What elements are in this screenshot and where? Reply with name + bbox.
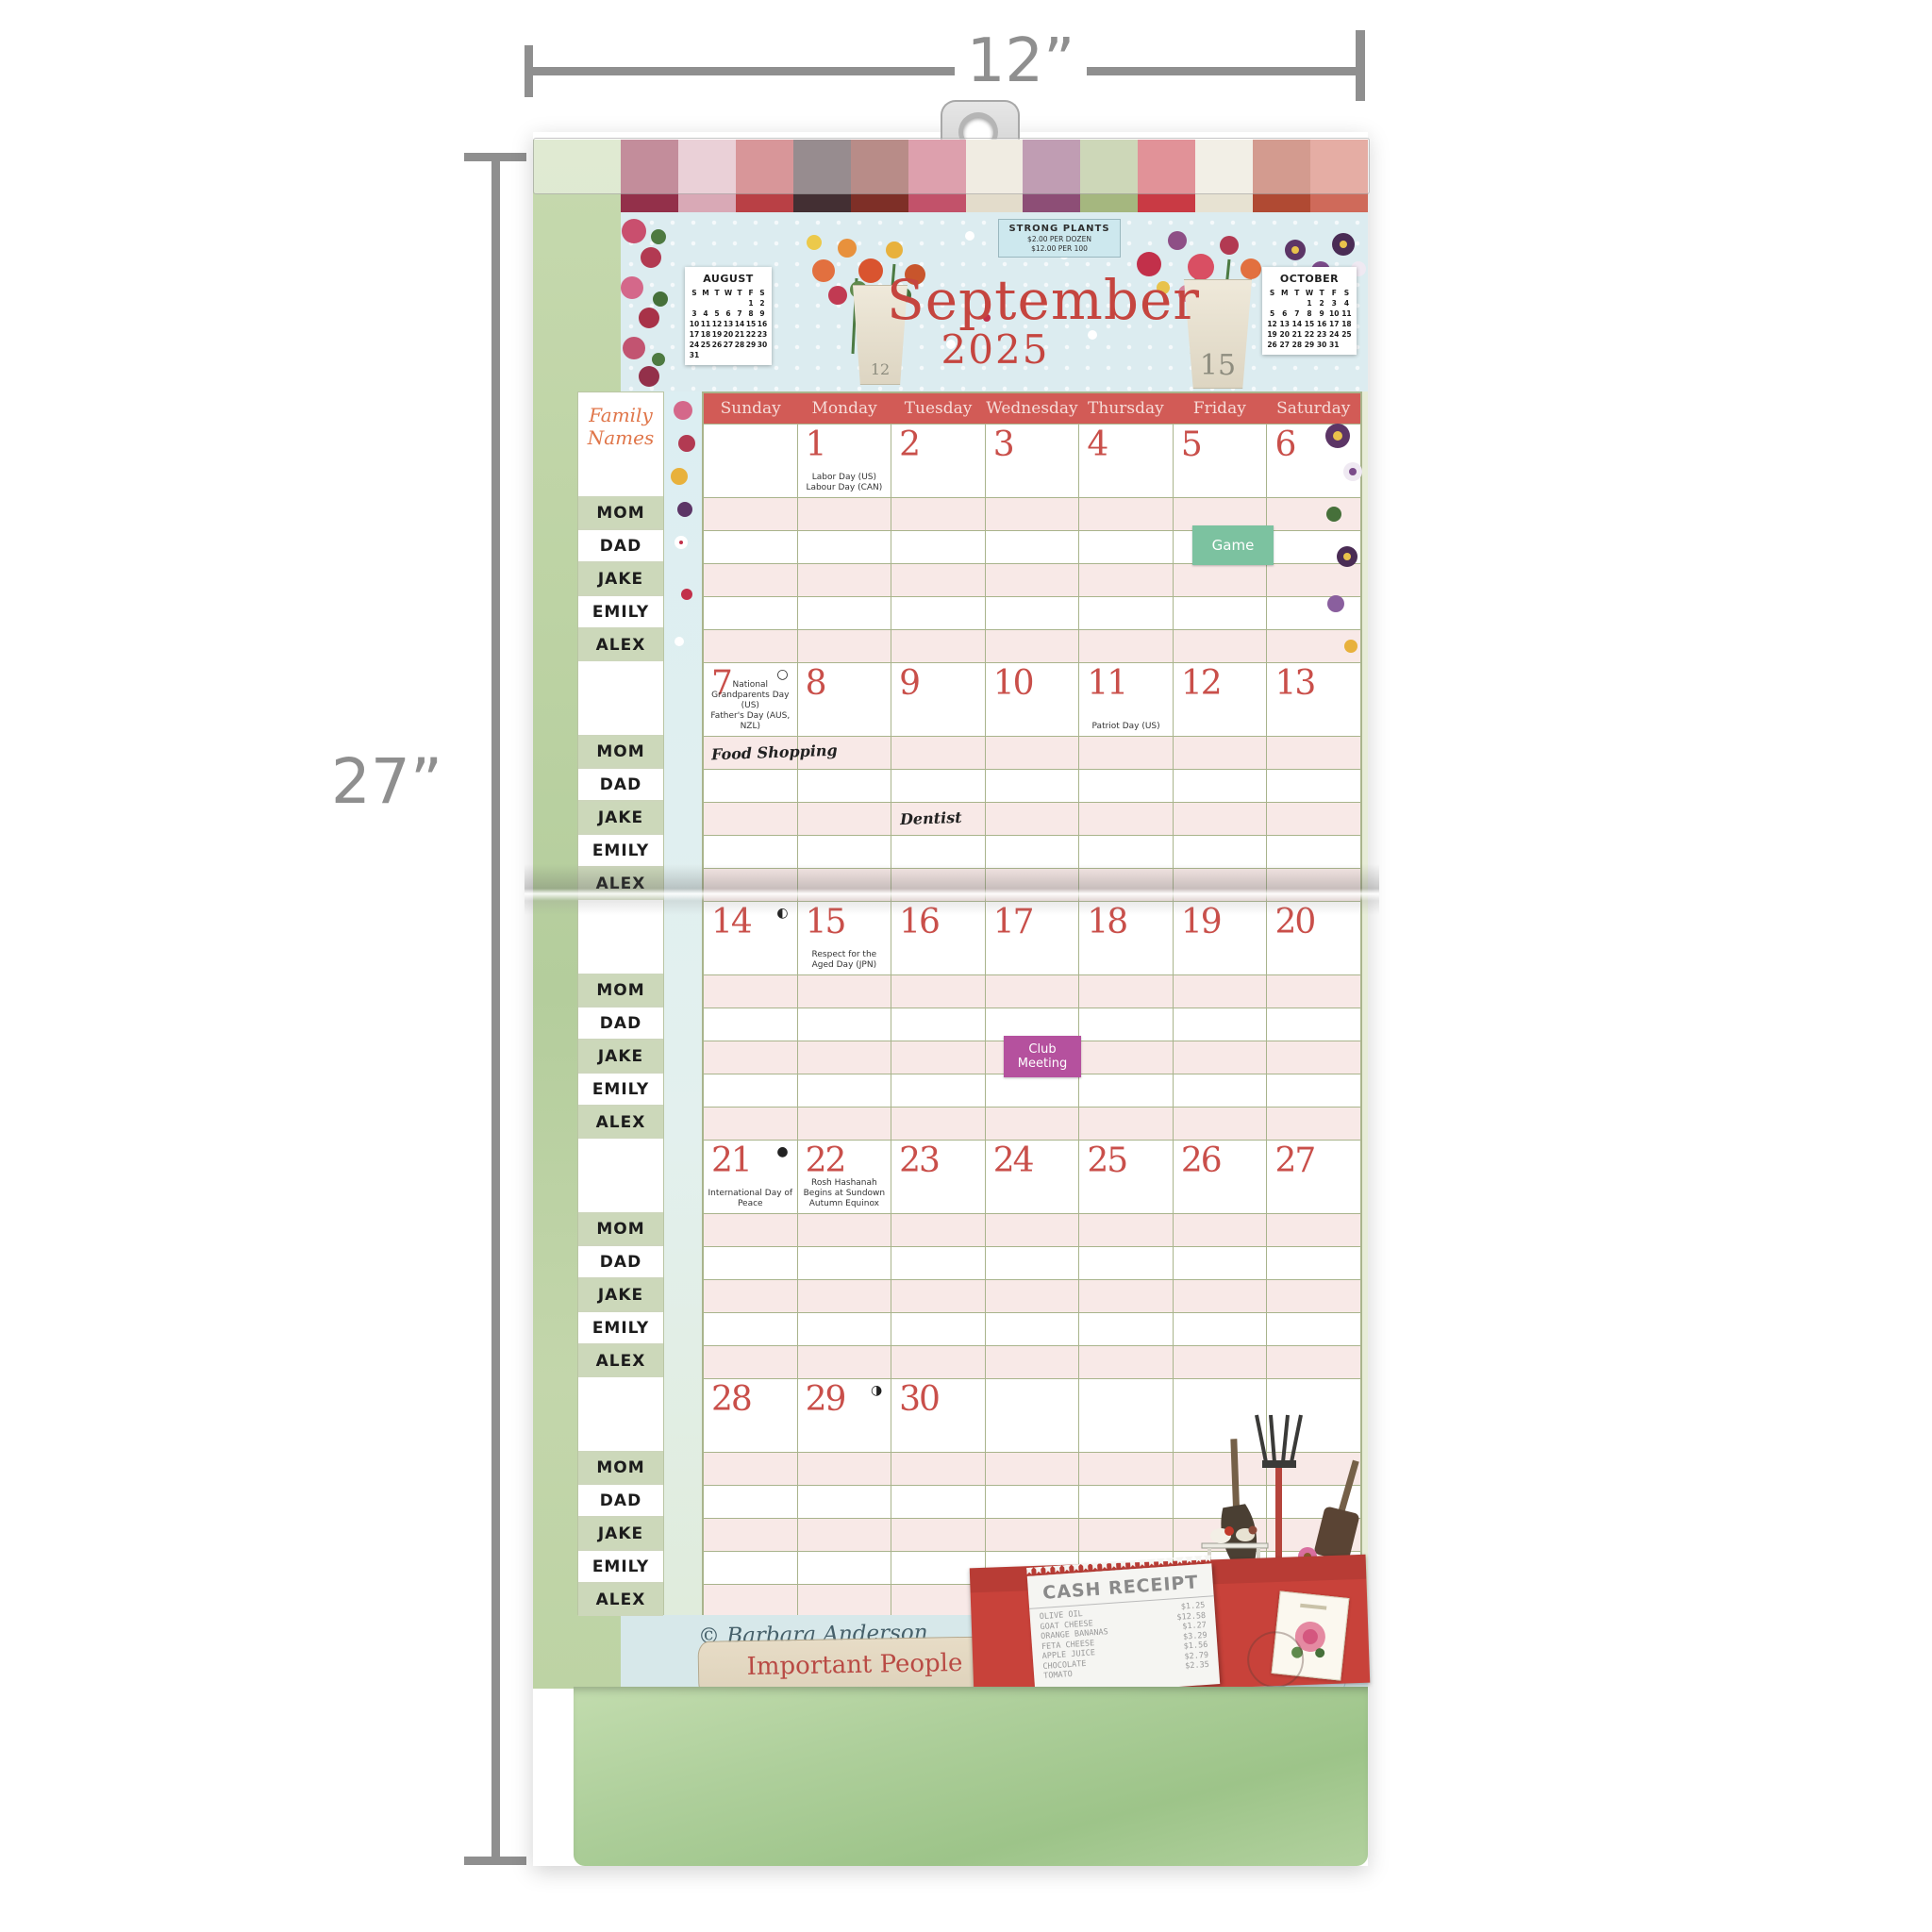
member-cell bbox=[1266, 1313, 1360, 1345]
mini-day-number: 17 bbox=[1328, 319, 1341, 329]
date-cell: 2 bbox=[891, 425, 985, 497]
date-cell: 21●International Day of Peace bbox=[704, 1141, 797, 1213]
member-cell bbox=[797, 498, 891, 530]
member-cell bbox=[891, 1313, 985, 1345]
member-row bbox=[704, 770, 1360, 803]
date-number: 5 bbox=[1181, 426, 1201, 464]
postage-stamp bbox=[1272, 1591, 1350, 1680]
holiday-label: Autumn Equinox bbox=[800, 1199, 890, 1209]
member-row bbox=[704, 1214, 1360, 1247]
date-number: 1 bbox=[806, 426, 825, 464]
date-number: 21 bbox=[711, 1142, 751, 1180]
family-name-cell: EMILY bbox=[578, 595, 663, 628]
member-row bbox=[704, 1074, 1360, 1108]
member-cell bbox=[797, 1280, 891, 1312]
sign-line: STRONG PLANTS bbox=[1001, 223, 1118, 235]
member-cell bbox=[985, 1346, 1079, 1379]
member-cell bbox=[891, 1008, 985, 1041]
mini-day-number: 15 bbox=[745, 319, 757, 329]
mini-day-number: 22 bbox=[1303, 329, 1315, 340]
date-number: 4 bbox=[1087, 426, 1107, 464]
family-name-cell: ALEX bbox=[578, 1344, 663, 1377]
member-cell bbox=[985, 597, 1079, 629]
member-cell bbox=[704, 1486, 797, 1518]
member-cell bbox=[1173, 975, 1267, 1008]
member-cell bbox=[704, 498, 797, 530]
mini-day-number bbox=[757, 350, 768, 360]
date-cell: 4 bbox=[1078, 425, 1173, 497]
member-cell bbox=[1173, 1247, 1267, 1279]
member-cell bbox=[797, 1074, 891, 1107]
holiday-label: Respect for the Aged Day (JPN) bbox=[800, 950, 890, 971]
member-cell bbox=[985, 836, 1079, 868]
member-cell bbox=[1173, 1008, 1267, 1041]
mini-day-number: 9 bbox=[1316, 308, 1328, 319]
mini-weekday-letter: S bbox=[1341, 288, 1353, 298]
member-cell bbox=[1173, 597, 1267, 629]
holiday-label: Patriot Day (US) bbox=[1081, 722, 1171, 732]
member-cell bbox=[891, 1519, 985, 1551]
mini-weekday-letter: W bbox=[1303, 288, 1315, 298]
date-zone: 7○National Grandparents Day (US)Father's… bbox=[704, 663, 1360, 736]
member-cell bbox=[1078, 1108, 1173, 1140]
family-names-title: Family Names bbox=[578, 404, 663, 449]
mini-weekday-letter: S bbox=[1266, 288, 1278, 298]
member-cell bbox=[1266, 770, 1360, 802]
mini-day-number: 20 bbox=[723, 329, 734, 340]
floral-divider-strip bbox=[664, 391, 702, 1615]
mini-day-number bbox=[1341, 340, 1353, 350]
family-name-cell: EMILY bbox=[578, 834, 663, 867]
mini-day-number: 30 bbox=[1316, 340, 1328, 350]
month-name: September bbox=[887, 272, 1104, 328]
member-rows bbox=[704, 1213, 1360, 1378]
date-cell: 7○National Grandparents Day (US)Father's… bbox=[704, 663, 797, 736]
holiday-labels: Respect for the Aged Day (JPN) bbox=[800, 950, 890, 971]
date-number: 28 bbox=[711, 1381, 751, 1419]
mini-day-number bbox=[734, 298, 745, 308]
date-cell bbox=[1078, 1379, 1173, 1452]
holiday-label: Rosh Hashanah Begins at Sundown bbox=[800, 1178, 890, 1199]
moon-phase-icon: ○ bbox=[776, 668, 788, 681]
member-cell bbox=[797, 1552, 891, 1584]
family-name-cell: EMILY bbox=[578, 1073, 663, 1106]
family-name-cell: ALEX bbox=[578, 628, 663, 661]
member-row bbox=[704, 1280, 1360, 1313]
mini-day-number: 24 bbox=[689, 340, 700, 350]
mini-weekday-letter: T bbox=[711, 288, 723, 298]
event-dentist: Dentist bbox=[900, 808, 962, 829]
date-cell: 13 bbox=[1266, 663, 1360, 736]
holiday-labels: Patriot Day (US) bbox=[1081, 722, 1171, 732]
receipt-items: OLIVE OIL$1.25GOAT CHEESE$12.58ORANGE BA… bbox=[1029, 1596, 1219, 1682]
family-name-cell: DAD bbox=[578, 1007, 663, 1040]
mini-day-number: 4 bbox=[1341, 298, 1353, 308]
member-cell bbox=[797, 597, 891, 629]
month-title: September 2025 bbox=[887, 272, 1104, 372]
sign-line: $2.00 PER DOZEN bbox=[1001, 235, 1118, 244]
date-number: 2 bbox=[899, 426, 919, 464]
member-row bbox=[704, 597, 1360, 630]
member-cell bbox=[1078, 1247, 1173, 1279]
member-cell bbox=[1078, 1280, 1173, 1312]
date-cell: 22Rosh Hashanah Begins at SundownAutumn … bbox=[797, 1141, 891, 1213]
member-cell bbox=[891, 770, 985, 802]
mini-day-number: 24 bbox=[1328, 329, 1341, 340]
mini-day-number: 12 bbox=[1266, 319, 1278, 329]
mini-day-number: 11 bbox=[1341, 308, 1353, 319]
mini-day-number bbox=[711, 298, 723, 308]
member-cell bbox=[1078, 498, 1173, 530]
family-name-cell: DAD bbox=[578, 1484, 663, 1517]
mini-day-number: 3 bbox=[689, 308, 700, 319]
member-cell bbox=[1173, 1041, 1267, 1074]
date-number: 24 bbox=[993, 1142, 1033, 1180]
family-names-panel: Family Names MOMDADJAKEEMILYALEXMOMDADJA… bbox=[577, 391, 664, 1615]
family-name-cell: MOM bbox=[578, 974, 663, 1007]
member-cell bbox=[797, 975, 891, 1008]
member-cell bbox=[1078, 1453, 1173, 1485]
mini-day-number: 5 bbox=[1266, 308, 1278, 319]
width-dimension-endcap bbox=[525, 45, 533, 97]
mini-day-number: 18 bbox=[700, 329, 711, 340]
date-cell: 10 bbox=[985, 663, 1079, 736]
member-cell bbox=[1173, 836, 1267, 868]
mini-day-number bbox=[700, 350, 711, 360]
member-cell bbox=[985, 1074, 1079, 1107]
mini-day-number: 25 bbox=[1341, 329, 1353, 340]
holiday-label: Labour Day (CAN) bbox=[800, 483, 890, 493]
mini-day-number: 7 bbox=[1291, 308, 1303, 319]
height-dimension-endcap bbox=[464, 1857, 526, 1865]
member-cell bbox=[797, 1519, 891, 1551]
member-cell bbox=[797, 1247, 891, 1279]
member-row bbox=[704, 803, 1360, 836]
member-cell bbox=[1078, 975, 1173, 1008]
member-cell bbox=[1266, 737, 1360, 769]
receipt-item-name: TOMATO bbox=[1043, 1670, 1073, 1682]
member-cell bbox=[891, 1214, 985, 1246]
holiday-label: National Grandparents Day (US) bbox=[706, 680, 795, 711]
member-cell bbox=[985, 770, 1079, 802]
mini-day-number: 22 bbox=[745, 329, 757, 340]
family-name-cell: EMILY bbox=[578, 1311, 663, 1344]
mini-weekday-letter: T bbox=[1291, 288, 1303, 298]
member-cell bbox=[891, 975, 985, 1008]
mini-day-number: 27 bbox=[723, 340, 734, 350]
mini-calendar-october: OCTOBERSMTWTFS12345678910111213141516171… bbox=[1262, 267, 1357, 355]
member-cell bbox=[1173, 737, 1267, 769]
mini-day-number: 3 bbox=[1328, 298, 1341, 308]
family-name-cell: JAKE bbox=[578, 1040, 663, 1073]
member-cell bbox=[1173, 1280, 1267, 1312]
date-cell: 24 bbox=[985, 1141, 1079, 1213]
member-cell bbox=[1173, 1346, 1267, 1379]
mini-day-number bbox=[1266, 298, 1278, 308]
member-cell bbox=[704, 770, 797, 802]
mini-day-number: 29 bbox=[1303, 340, 1315, 350]
member-rows: Club Meeting bbox=[704, 974, 1360, 1140]
mini-day-number: 23 bbox=[757, 329, 768, 340]
member-row bbox=[704, 1313, 1360, 1346]
member-cell bbox=[1173, 1108, 1267, 1140]
member-cell bbox=[891, 564, 985, 596]
mini-day-number: 19 bbox=[1266, 329, 1278, 340]
member-cell bbox=[1266, 1041, 1360, 1074]
mini-calendar-grid: SMTWTFS123456789101112131415161718192021… bbox=[1266, 288, 1353, 350]
date-cell: 5 bbox=[1173, 425, 1267, 497]
member-cell bbox=[797, 803, 891, 835]
day-header-label: Friday bbox=[1173, 393, 1266, 424]
mini-day-number: 5 bbox=[711, 308, 723, 319]
mini-calendar-title: OCTOBER bbox=[1266, 273, 1353, 286]
mini-day-number: 13 bbox=[723, 319, 734, 329]
member-cell bbox=[704, 1346, 797, 1379]
member-cell bbox=[891, 1041, 985, 1074]
width-dimension-line bbox=[1087, 67, 1358, 75]
member-cell bbox=[1266, 1108, 1360, 1140]
day-header-label: Wednesday bbox=[985, 393, 1078, 424]
member-cell bbox=[704, 597, 797, 629]
date-number: 23 bbox=[899, 1142, 939, 1180]
mini-day-number: 28 bbox=[1291, 340, 1303, 350]
member-cell bbox=[704, 1108, 797, 1140]
date-zone: 1Labor Day (US)Labour Day (CAN)23456 bbox=[704, 425, 1360, 497]
height-dimension-line bbox=[491, 153, 500, 1865]
date-cell: 1Labor Day (US)Labour Day (CAN) bbox=[797, 425, 891, 497]
member-cell bbox=[797, 564, 891, 596]
date-number: 13 bbox=[1274, 665, 1314, 703]
date-cell: 12 bbox=[1173, 663, 1267, 736]
width-dimension-label: 12” bbox=[955, 26, 1087, 96]
mini-day-number: 23 bbox=[1316, 329, 1328, 340]
member-cell bbox=[1078, 531, 1173, 563]
mini-day-number: 8 bbox=[745, 308, 757, 319]
mini-day-number: 20 bbox=[1278, 329, 1291, 340]
family-name-cell: JAKE bbox=[578, 801, 663, 834]
member-row bbox=[704, 975, 1360, 1008]
member-cell bbox=[891, 498, 985, 530]
date-number: 11 bbox=[1087, 665, 1126, 703]
member-cell bbox=[1173, 630, 1267, 662]
sign-line: $12.00 PER 100 bbox=[1001, 244, 1118, 254]
mini-day-number bbox=[723, 298, 734, 308]
family-name-cell: JAKE bbox=[578, 1278, 663, 1311]
date-number: 25 bbox=[1087, 1142, 1126, 1180]
mini-day-number: 30 bbox=[757, 340, 768, 350]
member-cell bbox=[985, 630, 1079, 662]
mini-day-number: 17 bbox=[689, 329, 700, 340]
member-cell bbox=[704, 1008, 797, 1041]
mini-day-number bbox=[689, 298, 700, 308]
date-number: 29 bbox=[806, 1381, 845, 1419]
mini-day-number: 2 bbox=[757, 298, 768, 308]
holiday-label: International Day of Peace bbox=[706, 1189, 795, 1209]
member-cell bbox=[1266, 975, 1360, 1008]
date-number: 26 bbox=[1181, 1142, 1221, 1180]
member-cell bbox=[1078, 803, 1173, 835]
member-cell bbox=[797, 531, 891, 563]
event-club-meeting: Club Meeting bbox=[1004, 1036, 1081, 1077]
member-cell bbox=[891, 1280, 985, 1312]
mini-calendar-grid: SMTWTFS123456789101112131415161718192021… bbox=[689, 288, 768, 360]
member-cell bbox=[891, 737, 985, 769]
mini-day-number: 21 bbox=[734, 329, 745, 340]
date-cell: 23 bbox=[891, 1141, 985, 1213]
mini-day-number: 26 bbox=[1266, 340, 1278, 350]
date-cell: 8 bbox=[797, 663, 891, 736]
member-cell bbox=[985, 1313, 1079, 1345]
mini-day-number: 14 bbox=[1291, 319, 1303, 329]
week-row: 1Labor Day (US)Labour Day (CAN)23456Game bbox=[704, 424, 1360, 662]
mini-weekday-letter: F bbox=[1328, 288, 1341, 298]
member-cell bbox=[891, 531, 985, 563]
date-number: 8 bbox=[806, 665, 825, 703]
family-name-cell: JAKE bbox=[578, 562, 663, 595]
member-cell bbox=[797, 1214, 891, 1246]
date-cell: 27 bbox=[1266, 1141, 1360, 1213]
member-cell bbox=[985, 737, 1079, 769]
mini-day-number bbox=[700, 298, 711, 308]
date-cell: 28 bbox=[704, 1379, 797, 1452]
member-cell bbox=[1266, 1247, 1360, 1279]
member-cell bbox=[704, 1041, 797, 1074]
family-name-cell: ALEX bbox=[578, 1583, 663, 1616]
member-cell bbox=[704, 564, 797, 596]
member-cell bbox=[891, 1453, 985, 1485]
mini-day-number: 21 bbox=[1291, 329, 1303, 340]
date-number: 10 bbox=[993, 665, 1033, 703]
mini-day-number: 11 bbox=[700, 319, 711, 329]
mini-day-number: 16 bbox=[1316, 319, 1328, 329]
member-cell bbox=[1173, 1214, 1267, 1246]
member-cell bbox=[797, 1585, 891, 1618]
holiday-labels: National Grandparents Day (US)Father's D… bbox=[706, 680, 795, 732]
mini-day-number bbox=[745, 350, 757, 360]
date-zone: 21●International Day of Peace22Rosh Hash… bbox=[704, 1141, 1360, 1213]
member-cell bbox=[985, 564, 1079, 596]
member-cell bbox=[1266, 836, 1360, 868]
mini-day-number: 4 bbox=[700, 308, 711, 319]
member-cell bbox=[797, 836, 891, 868]
mini-day-number: 25 bbox=[700, 340, 711, 350]
member-cell bbox=[1078, 1346, 1173, 1379]
family-name-cell: MOM bbox=[578, 735, 663, 768]
member-cell bbox=[1078, 1519, 1173, 1551]
member-row bbox=[704, 1108, 1360, 1141]
storage-pocket bbox=[574, 1687, 1368, 1866]
member-cell bbox=[797, 1486, 891, 1518]
member-cell bbox=[704, 1552, 797, 1584]
member-cell bbox=[1173, 564, 1267, 596]
date-cell: 3 bbox=[985, 425, 1079, 497]
mini-weekday-letter: F bbox=[745, 288, 757, 298]
mini-day-number: 10 bbox=[689, 319, 700, 329]
member-cell bbox=[985, 1486, 1079, 1518]
member-row bbox=[704, 1247, 1360, 1280]
receipt-item-price: $2.35 bbox=[1185, 1660, 1209, 1672]
date-number: 3 bbox=[993, 426, 1013, 464]
member-cell bbox=[704, 630, 797, 662]
member-cell bbox=[1078, 564, 1173, 596]
member-cell bbox=[797, 1008, 891, 1041]
member-row bbox=[704, 630, 1360, 663]
member-cell bbox=[797, 630, 891, 662]
holiday-labels: International Day of Peace bbox=[706, 1189, 795, 1209]
family-name-cell: DAD bbox=[578, 1245, 663, 1278]
member-cell bbox=[797, 1108, 891, 1140]
mini-day-number: 8 bbox=[1303, 308, 1315, 319]
member-cell bbox=[891, 597, 985, 629]
member-cell bbox=[1173, 1074, 1267, 1107]
holiday-labels: Labor Day (US)Labour Day (CAN) bbox=[800, 473, 890, 493]
member-cell bbox=[1078, 1041, 1173, 1074]
member-cell bbox=[704, 1214, 797, 1246]
member-cell bbox=[1173, 1313, 1267, 1345]
day-header-label: Thursday bbox=[1079, 393, 1173, 424]
product-image-page: 12” 27” bbox=[0, 0, 1932, 1932]
member-cell bbox=[1266, 803, 1360, 835]
member-row bbox=[704, 1346, 1360, 1379]
width-dimension-endcap bbox=[1356, 30, 1365, 101]
mini-day-number: 7 bbox=[734, 308, 745, 319]
mini-day-number: 31 bbox=[1328, 340, 1341, 350]
member-cell bbox=[985, 531, 1079, 563]
family-name-cell: JAKE bbox=[578, 1517, 663, 1550]
member-cell bbox=[797, 1041, 891, 1074]
member-cell bbox=[1266, 1280, 1360, 1312]
member-cell bbox=[1078, 1486, 1173, 1518]
family-name-cell: DAD bbox=[578, 529, 663, 562]
mini-day-number: 1 bbox=[1303, 298, 1315, 308]
mini-day-number bbox=[723, 350, 734, 360]
member-cell bbox=[1173, 770, 1267, 802]
week-row: 21●International Day of Peace22Rosh Hash… bbox=[704, 1140, 1360, 1378]
mini-day-number: 16 bbox=[757, 319, 768, 329]
strong-plants-sign: STRONG PLANTS $2.00 PER DOZEN $12.00 PER… bbox=[998, 219, 1121, 258]
date-number: 30 bbox=[899, 1381, 939, 1419]
date-number: 27 bbox=[1274, 1142, 1314, 1180]
member-cell bbox=[704, 1280, 797, 1312]
member-cell bbox=[891, 1247, 985, 1279]
member-cell bbox=[704, 1313, 797, 1345]
member-cell bbox=[704, 975, 797, 1008]
date-cell: 11Patriot Day (US) bbox=[1078, 663, 1173, 736]
date-cell: 9 bbox=[891, 663, 985, 736]
family-name-cell: MOM bbox=[578, 496, 663, 529]
mini-day-number: 27 bbox=[1278, 340, 1291, 350]
mini-weekday-letter: S bbox=[757, 288, 768, 298]
member-cell bbox=[985, 1519, 1079, 1551]
mini-weekday-letter: M bbox=[700, 288, 711, 298]
member-cell bbox=[1078, 1214, 1173, 1246]
member-cell bbox=[985, 1214, 1079, 1246]
family-name-cell: DAD bbox=[578, 768, 663, 801]
holiday-label: Labor Day (US) bbox=[800, 473, 890, 483]
date-cell: 30 bbox=[891, 1379, 985, 1452]
moon-phase-icon: ● bbox=[776, 1145, 788, 1158]
mini-day-number: 6 bbox=[723, 308, 734, 319]
event-game: Game bbox=[1192, 525, 1274, 565]
member-cell bbox=[891, 836, 985, 868]
member-cell bbox=[704, 1074, 797, 1107]
holiday-labels: Rosh Hashanah Begins at SundownAutumn Eq… bbox=[800, 1178, 890, 1209]
member-cell bbox=[704, 836, 797, 868]
mini-calendar-title: AUGUST bbox=[689, 273, 768, 286]
mini-day-number bbox=[1278, 298, 1291, 308]
mini-day-number bbox=[734, 350, 745, 360]
member-cell bbox=[985, 975, 1079, 1008]
